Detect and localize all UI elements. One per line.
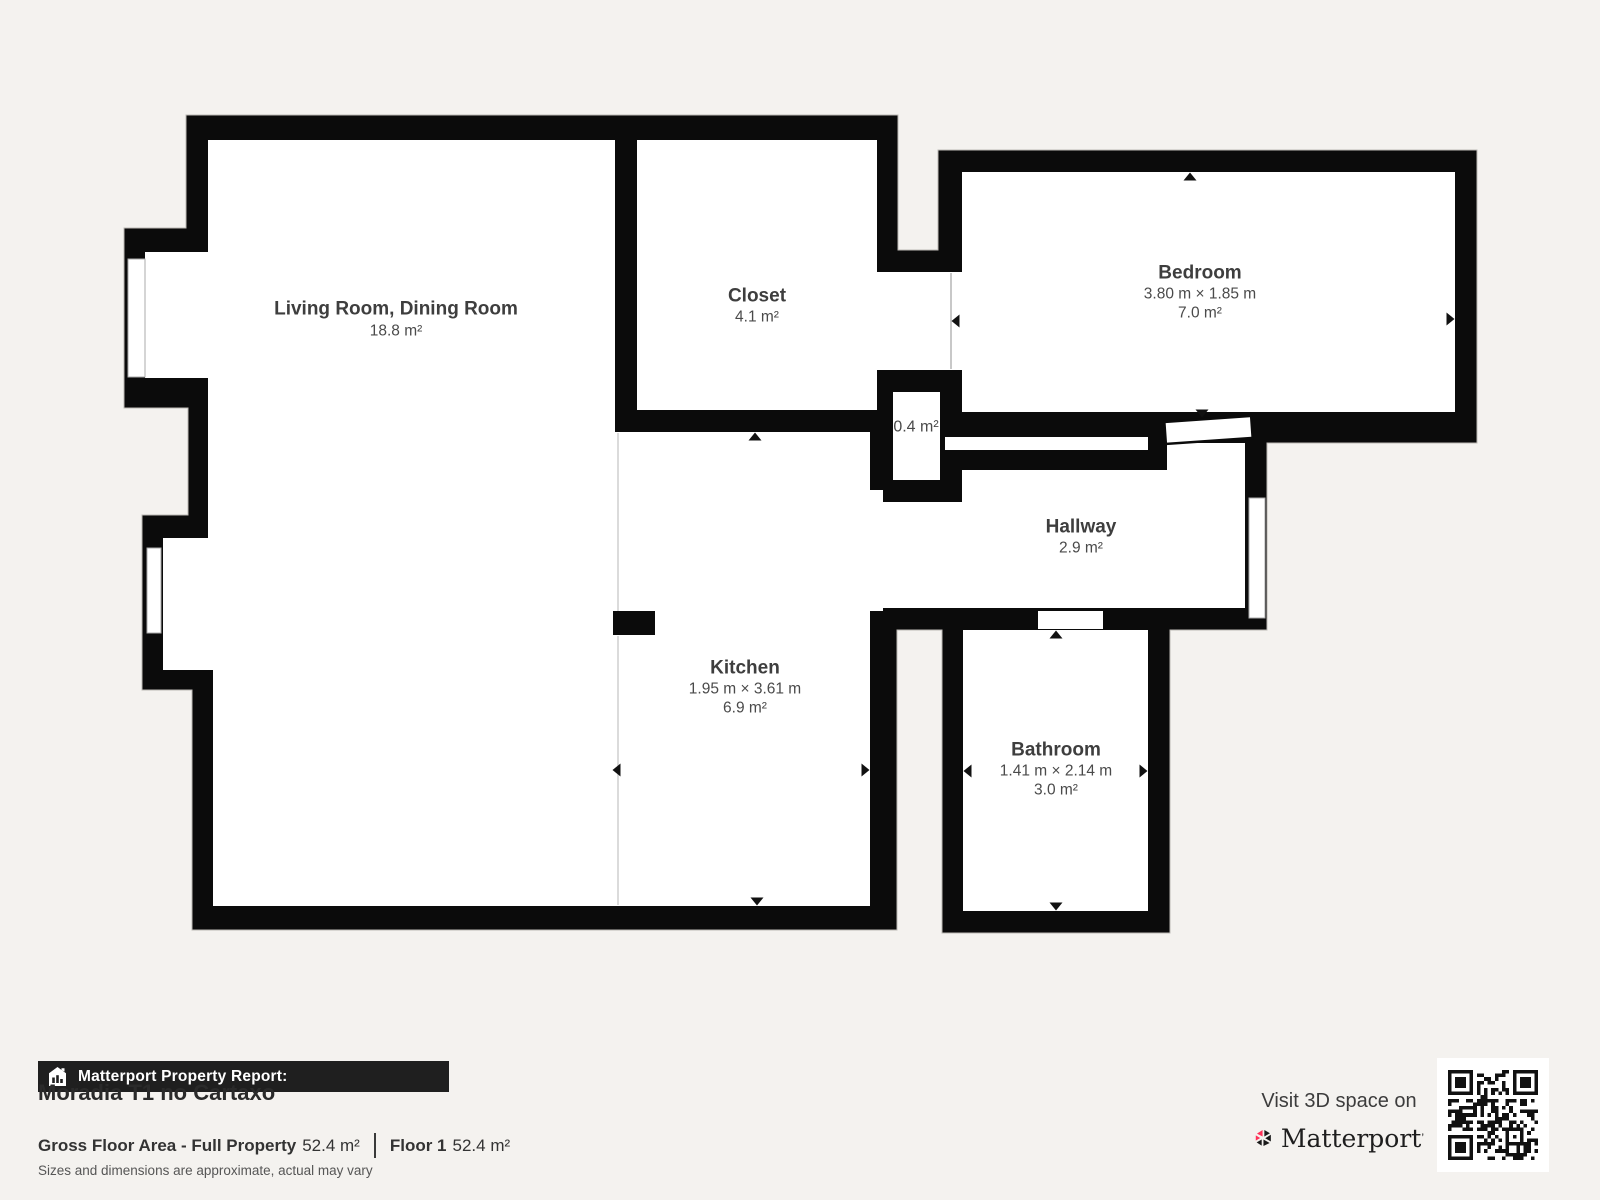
qr-code[interactable] — [1437, 1058, 1549, 1172]
hallway-area: 2.9 m² — [1059, 540, 1103, 557]
matterport-logo[interactable]: Matterport’ — [1254, 1122, 1424, 1154]
stats-divider — [374, 1133, 376, 1158]
visit-text: Visit 3D space on — [1254, 1090, 1424, 1113]
qr-code-image — [1448, 1070, 1538, 1160]
kitchen-dims: 1.95 m × 3.61 m — [689, 681, 801, 698]
bedroom-door-slot — [1164, 416, 1252, 444]
kitchen-area: 6.9 m² — [723, 700, 767, 717]
wall-pocket-slot — [945, 437, 1148, 450]
room-small-closet — [893, 392, 940, 480]
floor1-value: 52.4 m² — [453, 1136, 511, 1156]
floor-area-stats: Gross Floor Area - Full Property 52.4 m²… — [38, 1133, 510, 1158]
bedroom-label: Bedroom — [1158, 263, 1241, 284]
property-title: Moradia T1 no Cartaxo — [38, 1080, 275, 1106]
hallway-label: Hallway — [1046, 517, 1117, 538]
gross-floor-area-label: Gross Floor Area - Full Property — [38, 1136, 296, 1156]
window-slot — [1249, 498, 1265, 618]
disclaimer-text: Sizes and dimensions are approximate, ac… — [38, 1163, 373, 1178]
bathroom-label: Bathroom — [1011, 740, 1101, 761]
kitchen-hallway-opening — [870, 490, 883, 611]
bathroom-area: 3.0 m² — [1034, 782, 1078, 799]
kitchen-label: Kitchen — [710, 658, 780, 679]
small-closet-area: 0.4 m² — [893, 419, 939, 436]
bedroom-dims: 3.80 m × 1.85 m — [1144, 286, 1256, 303]
window-slot — [147, 548, 161, 633]
matterport-wordmark: Matterport — [1281, 1124, 1421, 1153]
vestibule — [877, 272, 962, 370]
living-room-label: Living Room, Dining Room — [274, 299, 518, 320]
visit-3d-cta: Visit 3D space on Matterport’ — [1254, 1090, 1424, 1154]
closet-area: 4.1 m² — [735, 309, 779, 326]
bedroom-area: 7.0 m² — [1178, 305, 1222, 322]
room-closet — [637, 140, 877, 410]
floor-plan: Living Room, Dining Room 18.8 m² Closet … — [0, 0, 1600, 1200]
brand-trademark: ’ — [1421, 1131, 1424, 1145]
living-room-area: 18.8 m² — [370, 323, 423, 340]
gross-floor-area-value: 52.4 m² — [302, 1136, 360, 1156]
matterport-pinwheel-icon — [1254, 1122, 1273, 1154]
floor1-label: Floor 1 — [390, 1136, 447, 1156]
bathroom-door-slot — [1038, 611, 1103, 629]
bathroom-dims: 1.41 m × 2.14 m — [1000, 763, 1112, 780]
window-slot — [128, 259, 145, 377]
closet-label: Closet — [728, 286, 787, 307]
kitchen-wall-stub — [613, 611, 655, 635]
